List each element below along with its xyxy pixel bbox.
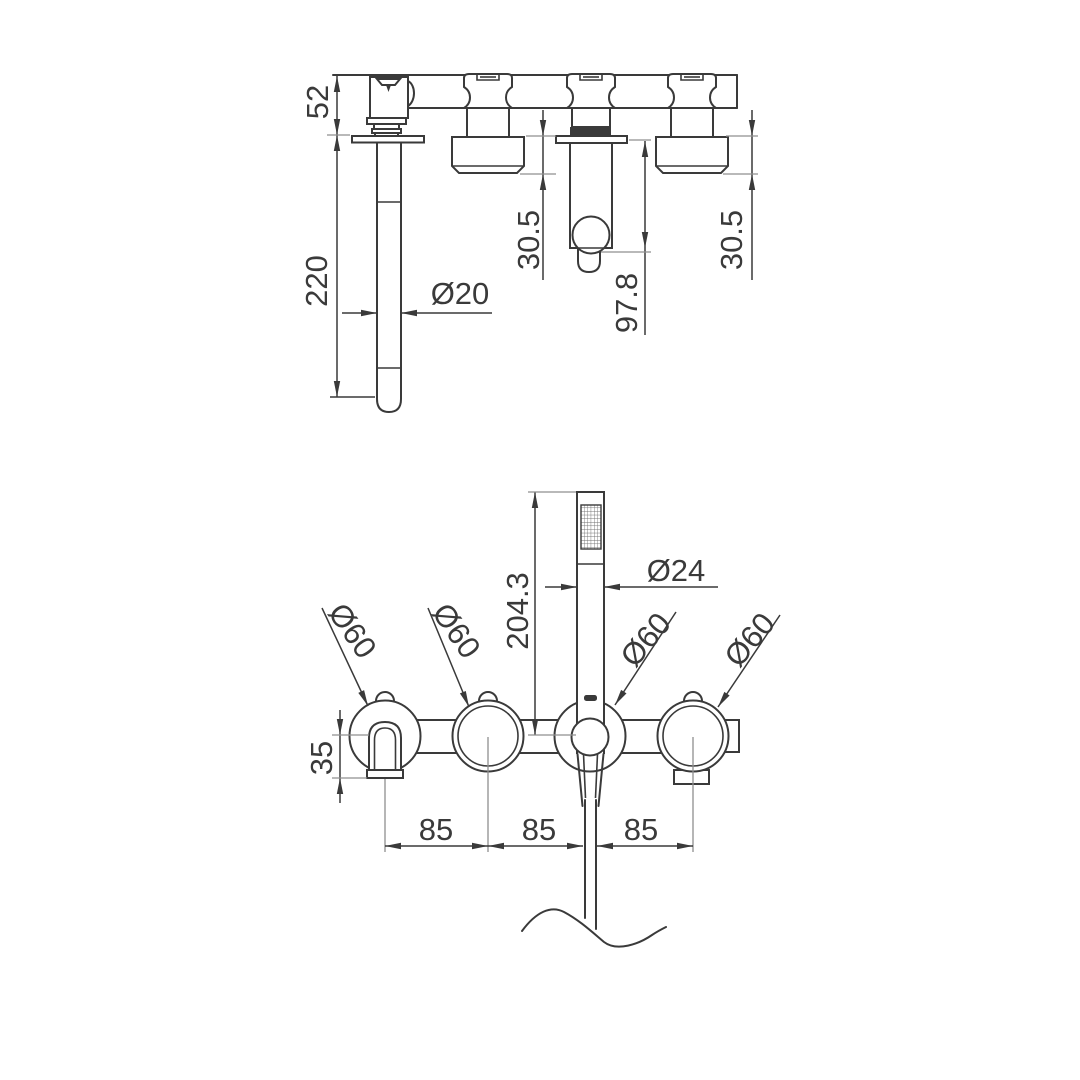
dim-rosette-1: Ø60 xyxy=(321,597,383,706)
dim-220-label: 220 xyxy=(299,255,334,307)
dim-handshower-diameter: Ø24 xyxy=(545,553,718,590)
dim-d60-label: Ø60 xyxy=(321,597,383,665)
front-view: 204.3 Ø24 Ø60 Ø60 Ø60 Ø60 xyxy=(304,492,782,947)
spout-escutcheon-side xyxy=(352,136,424,143)
technical-drawing: 52 220 Ø20 30.5 xyxy=(0,0,1080,1080)
dim-85-label: 85 xyxy=(624,812,658,847)
dim-2043-label: 204.3 xyxy=(500,572,535,650)
dim-85-chain: 85 85 85 xyxy=(385,812,693,849)
screw-icon xyxy=(377,79,400,85)
dim-35-label: 35 xyxy=(304,741,339,775)
dim-d20-label: Ø20 xyxy=(431,276,490,311)
spray-face xyxy=(581,505,601,549)
break-line xyxy=(522,909,666,946)
dim-305-left-label: 30.5 xyxy=(511,210,546,270)
dim-978-label: 97.8 xyxy=(609,273,644,333)
dim-d60-label: Ø60 xyxy=(425,597,487,665)
dim-305-right-label: 30.5 xyxy=(714,210,749,270)
dim-85-label: 85 xyxy=(522,812,556,847)
drawing-page: 52 220 Ø20 30.5 xyxy=(0,0,1080,1080)
dim-30-5-right: 30.5 xyxy=(714,110,758,280)
dim-85-label: 85 xyxy=(419,812,453,847)
hose-outlet xyxy=(572,719,609,756)
side-view: 52 220 Ø20 30.5 xyxy=(299,74,758,412)
dim-52: 52 xyxy=(300,76,350,397)
dim-204-3: 204.3 xyxy=(500,492,576,735)
dim-rosette-4: Ø60 xyxy=(717,606,781,707)
dim-30-5-left: 30.5 xyxy=(511,110,556,280)
spout-tube xyxy=(377,142,401,412)
spout-front xyxy=(367,722,403,778)
dim-d60-label: Ø60 xyxy=(717,606,781,673)
dim-rosette-3: Ø60 xyxy=(613,606,677,705)
valve-left-side xyxy=(452,74,524,173)
dim-d60-label: Ø60 xyxy=(613,606,677,673)
handle-side xyxy=(452,137,524,173)
dim-spout-diameter: Ø20 xyxy=(342,276,492,316)
dim-rosette-2: Ø60 xyxy=(425,597,487,707)
valve-right-side xyxy=(656,74,728,173)
dim-d24-label: Ø24 xyxy=(647,553,706,588)
hose xyxy=(578,754,604,929)
holder-side xyxy=(556,74,627,272)
handshower xyxy=(572,492,609,929)
mounting-bar xyxy=(385,720,700,753)
diverter-button xyxy=(584,695,597,701)
handle-side xyxy=(656,137,728,173)
dim-52-label: 52 xyxy=(300,85,335,119)
spout-side xyxy=(352,77,424,412)
